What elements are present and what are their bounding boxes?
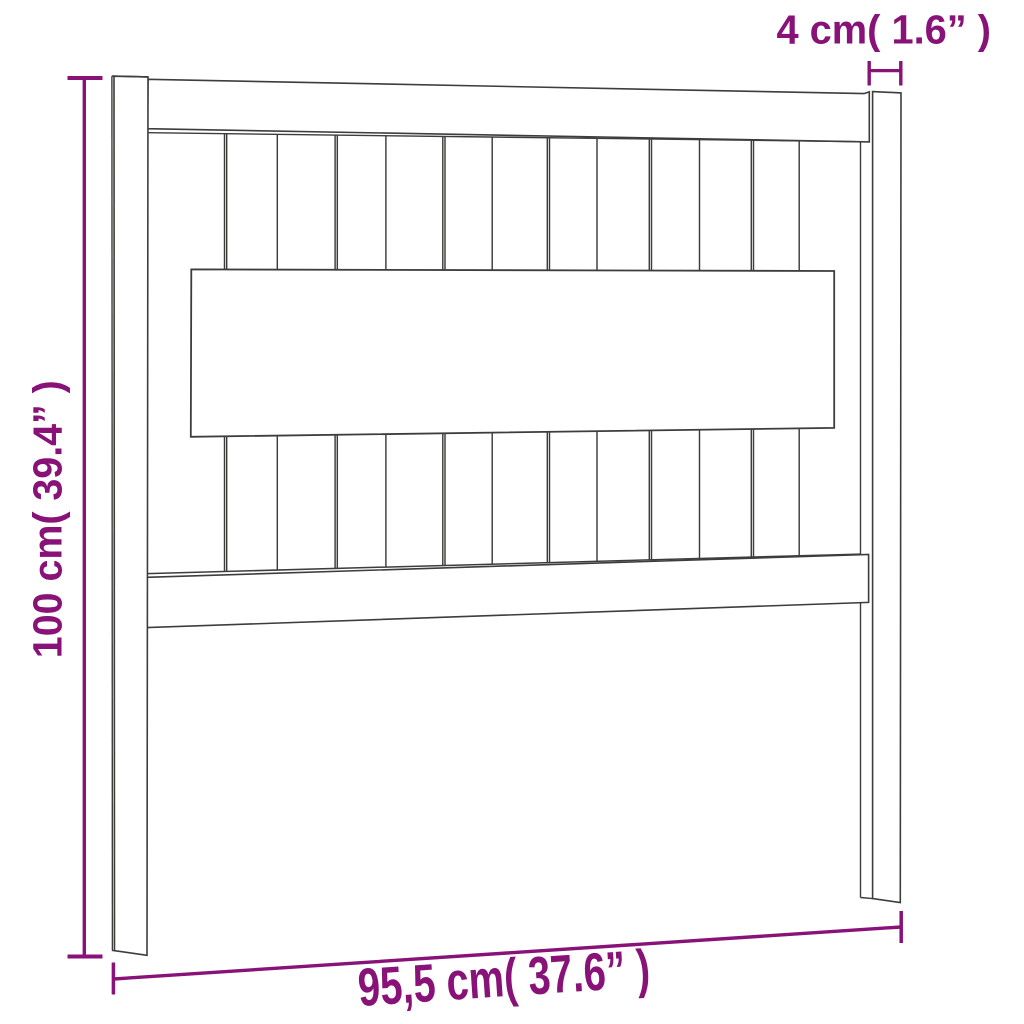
svg-text:100 cm( 39.4” ): 100 cm( 39.4” ) bbox=[25, 380, 71, 658]
svg-text:4 cm( 1.6” ): 4 cm( 1.6” ) bbox=[777, 6, 992, 52]
